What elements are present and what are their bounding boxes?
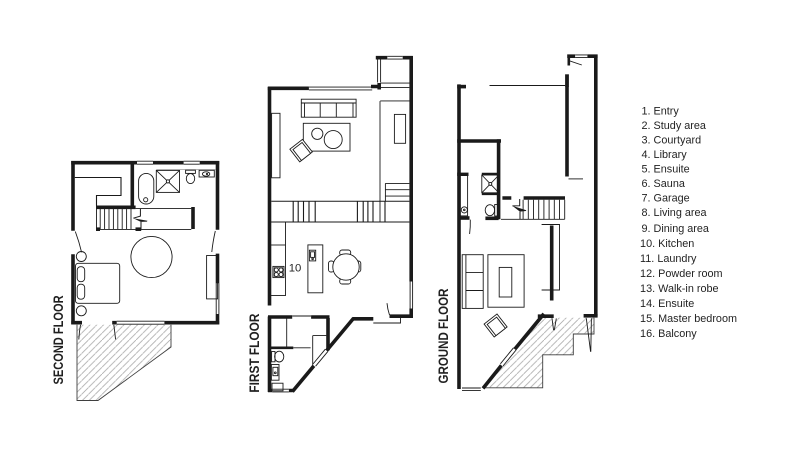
svg-text:12. Powder room: 12. Powder room xyxy=(640,268,723,280)
svg-text:GROUND FLOOR: GROUND FLOOR xyxy=(435,288,451,384)
svg-text:9. Dining area: 9. Dining area xyxy=(642,223,710,235)
svg-text:7. Garage: 7. Garage xyxy=(642,192,690,204)
svg-text:11. Laundry: 11. Laundry xyxy=(640,253,697,265)
svg-text:10. Kitchen: 10. Kitchen xyxy=(640,238,694,250)
svg-text:16. Balcony: 16. Balcony xyxy=(640,328,697,340)
svg-text:SECOND FLOOR: SECOND FLOOR xyxy=(49,295,66,384)
svg-text:15. Master bedroom: 15. Master bedroom xyxy=(640,313,737,325)
svg-text:1. Entry: 1. Entry xyxy=(642,105,680,117)
svg-text:FIRST FLOOR: FIRST FLOOR xyxy=(246,313,262,393)
svg-text:2. Study area: 2. Study area xyxy=(642,120,707,132)
svg-text:6. Sauna: 6. Sauna xyxy=(642,178,686,190)
svg-text:3. Courtyard: 3. Courtyard xyxy=(642,134,702,146)
svg-text:14. Ensuite: 14. Ensuite xyxy=(640,298,694,310)
svg-text:4. Library: 4. Library xyxy=(642,149,688,161)
svg-text:5. Ensuite: 5. Ensuite xyxy=(642,163,690,175)
svg-text:13. Walk-in robe: 13. Walk-in robe xyxy=(640,283,718,295)
svg-text:8. Living area: 8. Living area xyxy=(642,207,708,219)
svg-text:10: 10 xyxy=(289,263,302,275)
